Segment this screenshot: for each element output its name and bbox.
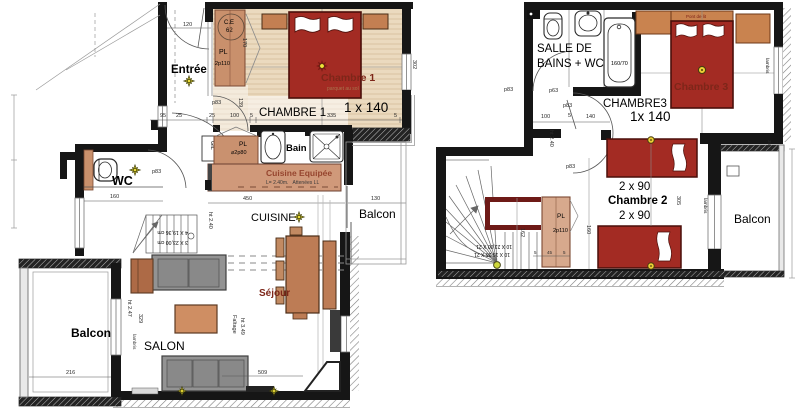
- svg-text:CHAMBRE 1: CHAMBRE 1: [259, 107, 326, 119]
- svg-text:C.E: C.E: [224, 20, 234, 26]
- svg-text:358: 358: [767, 140, 772, 148]
- svg-text:25: 25: [209, 113, 215, 119]
- svg-text:Séjour: Séjour: [259, 288, 290, 299]
- svg-text:4 X 19,36 cm: 4 X 19,36 cm: [157, 229, 188, 235]
- svg-text:p83: p83: [504, 87, 513, 93]
- svg-text:5: 5: [250, 113, 253, 119]
- svg-text:2p110: 2p110: [553, 228, 568, 234]
- svg-text:lambris: lambris: [764, 58, 770, 74]
- svg-text:1 x 140: 1 x 140: [344, 100, 388, 115]
- svg-text:ht 3.49: ht 3.49: [239, 318, 245, 335]
- svg-text:335: 335: [327, 113, 336, 119]
- svg-text:Balcon: Balcon: [359, 207, 396, 221]
- svg-text:Chambre 3: Chambre 3: [674, 81, 728, 93]
- svg-text:216: 216: [66, 370, 75, 376]
- svg-text:Pont de lit: Pont de lit: [686, 14, 707, 19]
- svg-text:130: 130: [371, 196, 380, 202]
- svg-text:95: 95: [160, 113, 166, 119]
- svg-text:PL: PL: [239, 141, 247, 148]
- svg-text:160: 160: [585, 225, 591, 234]
- svg-text:100: 100: [541, 114, 550, 120]
- svg-text:160: 160: [110, 194, 119, 200]
- svg-text:PL: PL: [557, 213, 565, 220]
- svg-text:p63: p63: [549, 88, 558, 94]
- svg-text:140: 140: [586, 114, 595, 120]
- svg-text:1x 140: 1x 140: [630, 109, 671, 124]
- svg-text:CUISINE: CUISINE: [251, 212, 296, 224]
- svg-text:ht 2.47: ht 2.47: [126, 300, 132, 317]
- svg-text:100: 100: [230, 113, 239, 119]
- svg-text:2 x 90: 2 x 90: [619, 181, 650, 193]
- svg-text:Chambre 2: Chambre 2: [608, 195, 667, 207]
- svg-text:p83: p83: [563, 103, 572, 109]
- svg-text:25: 25: [176, 113, 182, 119]
- svg-text:5: 5: [394, 113, 397, 119]
- svg-text:45: 45: [547, 250, 553, 255]
- svg-text:305: 305: [675, 196, 681, 205]
- svg-text:Chambre 1: Chambre 1: [321, 72, 375, 84]
- svg-text:lambris: lambris: [131, 334, 137, 350]
- svg-text:PL: PL: [219, 49, 228, 56]
- svg-text:ht 2.40: ht 2.40: [207, 212, 213, 229]
- svg-text:parquet au sol: parquet au sol: [327, 86, 359, 92]
- svg-text:62: 62: [226, 28, 233, 34]
- svg-text:ht 2.40: ht 2.40: [548, 130, 554, 147]
- svg-text:SALON: SALON: [144, 339, 185, 353]
- svg-text:2p110: 2p110: [215, 61, 230, 67]
- svg-text:3 X 23,00 cm: 3 X 23,00 cm: [157, 239, 188, 245]
- svg-text:Balcon: Balcon: [71, 326, 111, 340]
- svg-text:302: 302: [411, 60, 417, 69]
- svg-text:p83: p83: [212, 100, 221, 106]
- svg-text:Balcon: Balcon: [734, 212, 771, 226]
- svg-text:5: 5: [568, 113, 571, 119]
- svg-text:BAINS + WC: BAINS + WC: [537, 58, 604, 70]
- svg-text:Entrée: Entrée: [171, 64, 207, 76]
- svg-text:SALLE DE: SALLE DE: [537, 43, 592, 55]
- svg-text:Cuisine Equipée: Cuisine Equipée: [266, 168, 332, 178]
- svg-text:Bain: Bain: [286, 143, 307, 154]
- svg-text:162: 162: [519, 228, 525, 237]
- svg-text:10 X 23,00 X 21: 10 X 23,00 X 21: [476, 243, 512, 249]
- svg-text:p83: p83: [152, 169, 161, 175]
- svg-text:L= 2.40m. Attenées LL: L= 2.40m. Attenées LL: [266, 180, 319, 186]
- svg-text:10 X 19,36 X 21: 10 X 19,36 X 21: [474, 251, 510, 257]
- svg-text:WC: WC: [112, 174, 133, 188]
- svg-text:329: 329: [137, 314, 143, 323]
- svg-text:2 x 90: 2 x 90: [619, 210, 650, 222]
- svg-text:450: 450: [243, 196, 252, 202]
- svg-text:509: 509: [258, 370, 267, 376]
- svg-text:170: 170: [241, 38, 247, 47]
- svg-text:lambris: lambris: [702, 198, 708, 214]
- svg-text:160/70: 160/70: [611, 61, 628, 67]
- svg-text:Faîtage: Faîtage: [231, 315, 237, 334]
- svg-text:139: 139: [237, 98, 243, 107]
- svg-text:120: 120: [183, 22, 192, 28]
- svg-text:p83: p83: [566, 164, 575, 170]
- svg-text:⌀2p80: ⌀2p80: [231, 150, 247, 156]
